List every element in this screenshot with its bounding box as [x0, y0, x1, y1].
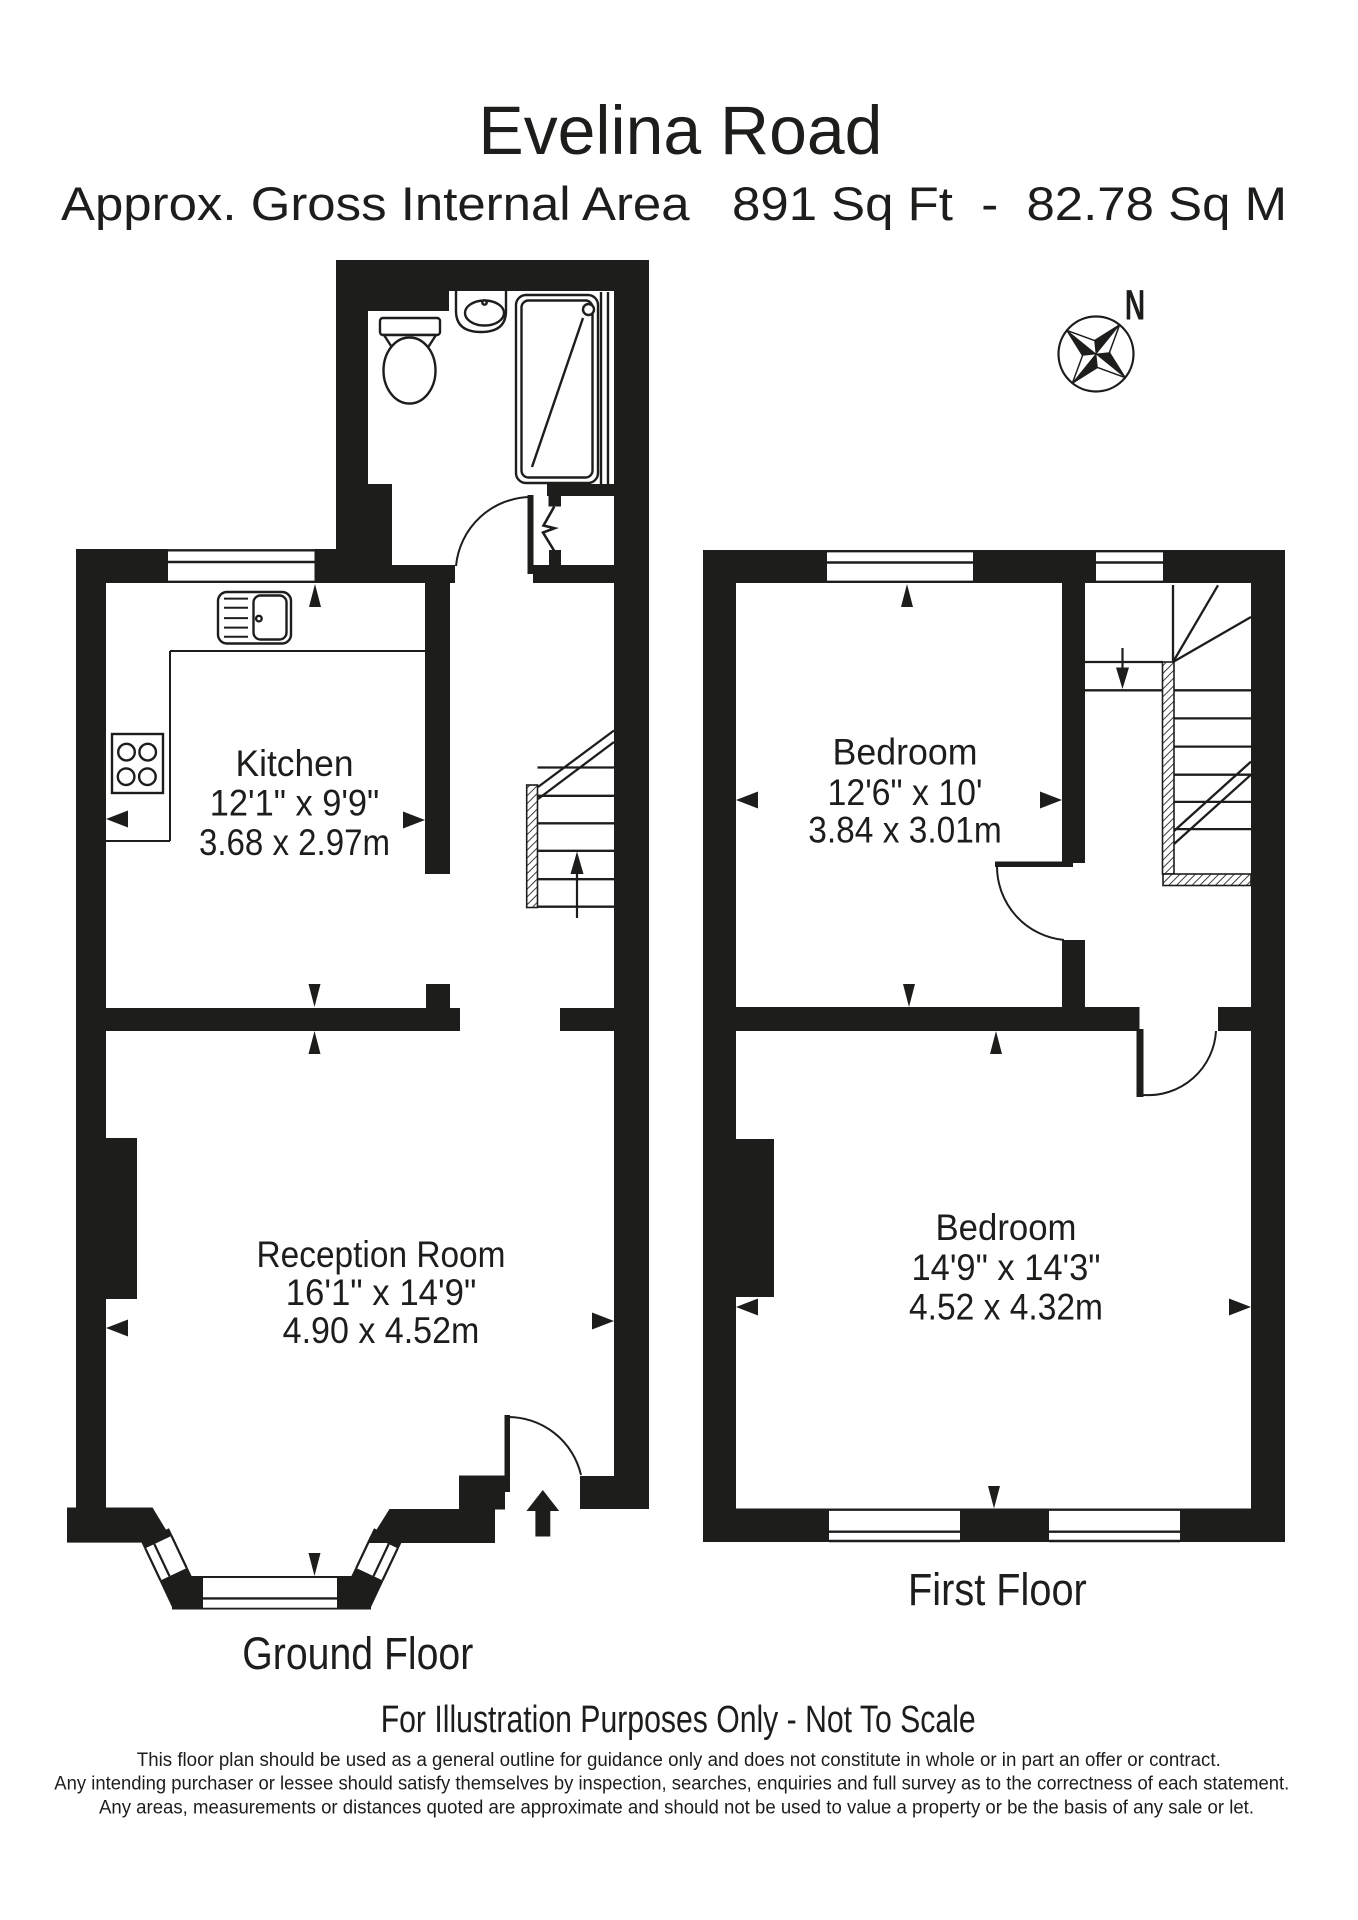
- svg-text:Any intending purchaser or les: Any intending purchaser or lessee should…: [54, 1774, 1289, 1795]
- svg-text:3.84 x 3.01m: 3.84 x 3.01m: [808, 810, 1002, 851]
- svg-text:4.52 x 4.32m: 4.52 x 4.32m: [909, 1286, 1103, 1327]
- svg-text:Approx. Gross Internal Area: Approx. Gross Internal Area 891 Sq Ft - …: [61, 178, 1287, 231]
- svg-text:12'6" x 10': 12'6" x 10': [828, 772, 983, 813]
- svg-text:Any areas, measurements or dis: Any areas, measurements or distances quo…: [99, 1797, 1254, 1818]
- svg-text:Ground Floor: Ground Floor: [242, 1628, 473, 1679]
- svg-text:Bedroom: Bedroom: [833, 731, 978, 772]
- svg-text:Reception Room: Reception Room: [257, 1234, 506, 1275]
- svg-text:4.90 x 4.52m: 4.90 x 4.52m: [283, 1310, 480, 1351]
- svg-text:12'1" x 9'9": 12'1" x 9'9": [210, 783, 380, 824]
- svg-text:N: N: [1125, 281, 1145, 329]
- svg-text:For Illustration Purposes Only: For Illustration Purposes Only - Not To …: [381, 1699, 976, 1741]
- svg-text:3.68 x 2.97m: 3.68 x 2.97m: [199, 822, 390, 863]
- svg-text:Bedroom: Bedroom: [936, 1207, 1077, 1248]
- svg-text:Evelina Road: Evelina Road: [478, 92, 882, 169]
- svg-text:First Floor: First Floor: [908, 1564, 1087, 1615]
- svg-text:This floor plan should be used: This floor plan should be used as a gene…: [137, 1750, 1221, 1771]
- svg-text:16'1" x 14'9": 16'1" x 14'9": [286, 1272, 477, 1313]
- svg-text:Kitchen: Kitchen: [236, 743, 354, 784]
- svg-text:14'9" x 14'3": 14'9" x 14'3": [912, 1247, 1101, 1288]
